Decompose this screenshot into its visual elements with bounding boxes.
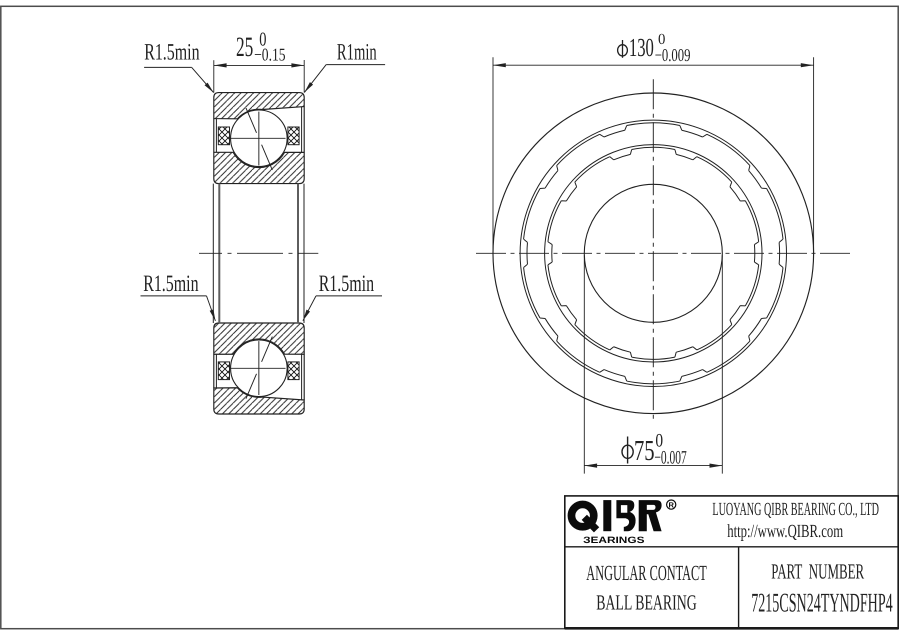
svg-text:PART NUMBER: PART NUMBER	[771, 559, 864, 583]
svg-text:LUOYANG QIBR BEARING CO., LTD: LUOYANG QIBR BEARING CO., LTD	[712, 500, 879, 520]
svg-text:BALL BEARING: BALL BEARING	[596, 590, 697, 614]
svg-text:−0.007: −0.007	[654, 447, 686, 468]
svg-text:http://www.QIBR.com: http://www.QIBR.com	[727, 522, 843, 542]
svg-text:−0.009: −0.009	[655, 45, 691, 65]
svg-text:R: R	[668, 500, 674, 509]
svg-text:25: 25	[236, 32, 253, 63]
svg-text:R1.5min: R1.5min	[319, 271, 375, 297]
svg-text:130: 130	[629, 33, 654, 62]
svg-text:75: 75	[634, 435, 655, 467]
svg-text:7215CSN24TYNDFHP4: 7215CSN24TYNDFHP4	[751, 588, 893, 618]
svg-text:ANGULAR CONTACT: ANGULAR CONTACT	[586, 561, 707, 585]
svg-text:R1.5min: R1.5min	[144, 40, 200, 66]
svg-text:R1min: R1min	[337, 39, 377, 65]
svg-text:R1.5min: R1.5min	[143, 271, 199, 297]
svg-text:ЗEARINGS: ЗEARINGS	[583, 535, 644, 545]
svg-text:−0.15: −0.15	[254, 45, 286, 65]
